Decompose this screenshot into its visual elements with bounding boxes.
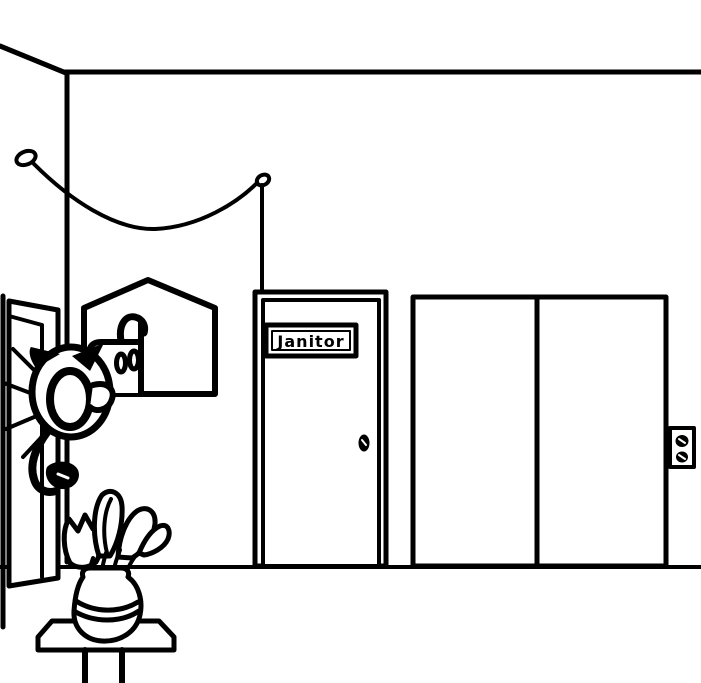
janitor-door[interactable]: Janitor xyxy=(255,292,386,566)
elevator[interactable] xyxy=(413,297,694,566)
hanging-wire[interactable] xyxy=(14,148,271,292)
character-eye xyxy=(50,371,90,427)
character-mouth xyxy=(90,384,113,410)
flower-vase[interactable] xyxy=(74,568,141,641)
fountain-button-right[interactable] xyxy=(130,351,139,369)
game-scene-hallway: Janitor xyxy=(0,0,701,683)
janitor-sign-label: Janitor xyxy=(276,332,344,351)
ceiling-corner-diagonal xyxy=(0,46,66,73)
fountain-button-left[interactable] xyxy=(117,354,126,372)
